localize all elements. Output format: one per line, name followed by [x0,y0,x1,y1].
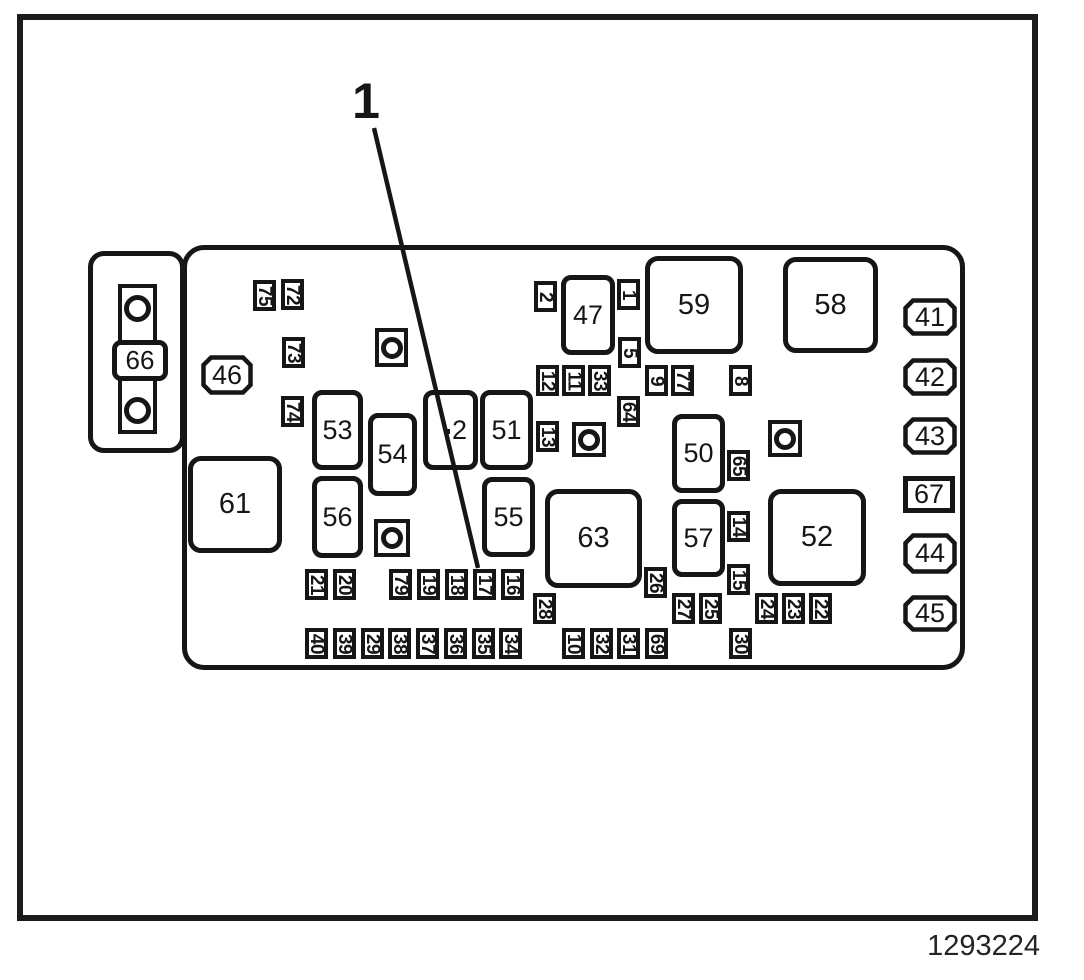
bolt-head-icon [774,428,796,450]
fuse-label: 16 [502,574,524,594]
fuse-20: 20 [333,569,356,600]
fuse-label: 22 [810,598,832,618]
fuse-label: 21 [306,574,328,594]
fuse-label: 8 [729,375,751,385]
fuse-label: 32 [591,633,613,653]
fuse-label: 2 [534,291,556,301]
fuse-label: 29 [362,633,384,653]
fuse-11: 11 [562,365,585,396]
fuse-label: 73 [283,342,305,362]
relay-label: 53 [322,415,352,446]
fuse-label: 37 [417,633,439,653]
fuse-41: 41 [903,298,957,336]
fuse-25: 25 [699,593,722,624]
terminal-circle-icon [124,397,151,424]
fuse-label: 24 [756,598,778,618]
relay-51: 51 [480,390,533,470]
fuse-label: 42 [915,362,945,393]
relay-58: 58 [783,257,878,353]
fuse-37: 37 [416,628,439,659]
fuse-label: 34 [500,633,522,653]
fuse-label: 30 [730,633,752,653]
fuse-64: 64 [617,396,640,427]
relay-47: 47 [561,275,615,355]
fuse-69: 69 [645,628,668,659]
relay-55: 55 [482,477,535,557]
fuse-label: 72 [282,284,304,304]
fuse-label: 5 [618,347,640,357]
fuse-67: 67 [903,476,955,513]
fuse-label: 18 [446,574,468,594]
bolt-icon [375,328,408,367]
relay-label: 61 [219,488,251,521]
fuse-label: 31 [618,633,640,653]
fuse-42: 42 [903,358,957,396]
fuse-45: 45 [903,595,957,632]
fuse-14: 14 [727,511,750,542]
fuse-label: 38 [389,633,411,653]
fuse-31: 31 [617,628,640,659]
fuse-73: 73 [282,337,305,368]
relay-59: 59 [645,256,743,354]
relay-label: 2 [452,415,467,446]
relay-54: 54 [368,413,417,496]
fuse-label: 39 [334,633,356,653]
relay-label: 51 [491,415,521,446]
mega-fuse-66: 66 [112,340,168,381]
bolt-head-icon [381,527,403,549]
relay-50: 50 [672,414,725,493]
fuse-36: 36 [444,628,467,659]
fuse-label: 26 [645,572,667,592]
fuse-12: 12 [536,365,559,396]
fuse-17: 17 [473,569,496,600]
fuse-label: 28 [534,598,556,618]
terminal-circle-icon [124,295,151,322]
callout-number: 1 [344,72,388,130]
bolt-icon [572,422,606,457]
relay-label: 56 [322,502,352,533]
fuse-1: 1 [617,279,640,310]
fuse-label: 69 [646,633,668,653]
fuse-72: 72 [281,279,304,310]
bolt-head-icon [381,337,403,359]
fuse-74: 74 [281,396,304,427]
fuse-label: 17 [474,574,496,594]
relay-57: 57 [672,499,725,577]
fuse-label: 14 [728,516,750,536]
fuse-19: 19 [417,569,440,600]
mega-fuse-label: 66 [126,345,155,376]
relay-label: 47 [573,300,603,331]
fuse-18: 18 [445,569,468,600]
fuse-label: 79 [390,574,412,594]
fuse-5: 5 [618,337,641,368]
bolt-icon [768,420,802,457]
relay-label: 57 [683,523,713,554]
fuse-16: 16 [501,569,524,600]
fuse-label: 13 [537,426,559,446]
fuse-label: 64 [618,401,640,421]
fuse-43: 43 [903,417,957,455]
bolt-icon [374,519,410,557]
fuse-label: 35 [473,633,495,653]
fuse-44: 44 [903,533,957,574]
fuse-label: 20 [334,574,356,594]
fuse-32: 32 [590,628,613,659]
fuse-33: 33 [588,365,611,396]
fuse-label: 12 [537,370,559,390]
fuse-label: 41 [915,302,945,333]
relay-2: 2 [423,390,478,470]
fuse-26: 26 [644,567,667,598]
fuse-box-diagram: 66 1 1293224 757273742151211339778641365… [0,0,1084,980]
fuse-label: 77 [672,370,694,390]
fuse-label: 10 [563,633,585,653]
fuse-22: 22 [809,593,832,624]
fuse-2: 2 [534,281,557,312]
relay-61: 61 [188,456,282,553]
relay-label: 55 [493,502,523,533]
fuse-9: 9 [645,365,668,396]
obscured-digit-fragment [446,429,450,434]
relay-label: 59 [678,289,710,322]
fuse-21: 21 [305,569,328,600]
fuse-39: 39 [333,628,356,659]
fuse-29: 29 [361,628,384,659]
relay-label: 58 [814,289,846,322]
fuse-label: 9 [645,375,667,385]
fuse-label: 44 [915,538,945,569]
fuse-label: 40 [306,633,328,653]
fuse-15: 15 [727,564,750,595]
relay-56: 56 [312,476,363,558]
fuse-label: 65 [728,455,750,475]
relay-63: 63 [545,489,642,588]
fuse-label: 19 [418,574,440,594]
fuse-label: 11 [563,371,585,390]
fuse-35: 35 [472,628,495,659]
fuse-24: 24 [755,593,778,624]
relay-label: 50 [683,438,713,469]
relay-53: 53 [312,390,363,470]
relay-label: 52 [801,521,833,554]
fuse-label: 75 [254,285,276,305]
fuse-label: 15 [728,569,750,589]
fuse-label: 27 [673,598,695,618]
fuse-label: 23 [783,598,805,618]
fuse-10: 10 [562,628,585,659]
fuse-28: 28 [533,593,556,624]
fuse-label: 74 [282,401,304,421]
relay-52: 52 [768,489,866,586]
fuse-label: 1 [617,289,639,299]
fuse-8: 8 [729,365,752,396]
fuse-46: 46 [201,355,253,395]
relay-label: 54 [377,439,407,470]
fuse-65: 65 [727,450,750,481]
fuse-27: 27 [672,593,695,624]
fuse-38: 38 [388,628,411,659]
fuse-40: 40 [305,628,328,659]
fuse-label: 46 [212,360,242,391]
bolt-head-icon [578,429,600,451]
relay-label: 63 [577,522,609,555]
fuse-label: 25 [700,598,722,618]
fuse-label: 67 [914,479,944,510]
fuse-34: 34 [499,628,522,659]
part-number: 1293224 [927,930,1040,963]
fuse-30: 30 [729,628,752,659]
fuse-label: 36 [445,633,467,653]
fuse-label: 43 [915,421,945,452]
fuse-79: 79 [389,569,412,600]
fuse-75: 75 [253,280,276,311]
fuse-77: 77 [671,365,694,396]
fuse-label: 33 [589,370,611,390]
fuse-23: 23 [782,593,805,624]
fuse-13: 13 [536,421,559,452]
fuse-label: 45 [915,598,945,629]
